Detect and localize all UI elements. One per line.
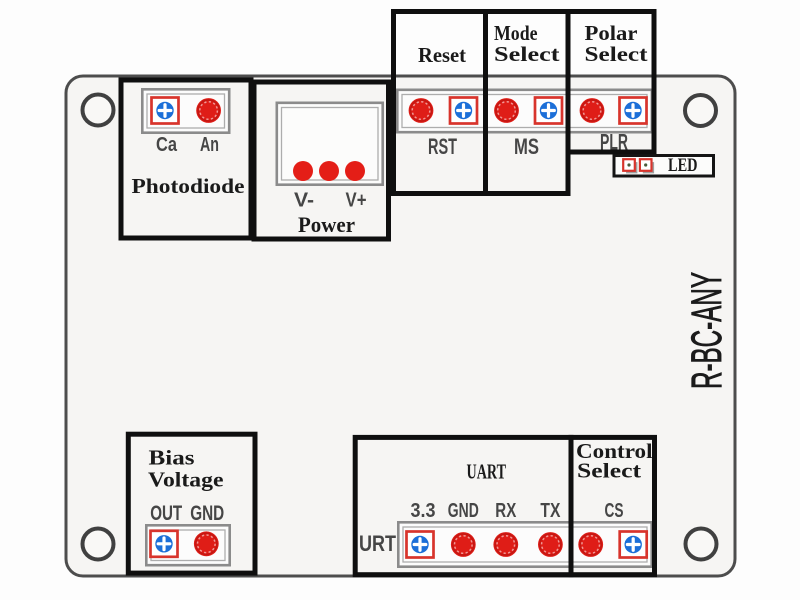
svg-text:PLR: PLR (600, 130, 628, 155)
svg-text:GND: GND (448, 500, 479, 522)
svg-text:Select: Select (494, 42, 560, 66)
svg-text:Photodiode: Photodiode (132, 174, 245, 198)
svg-text:Select: Select (585, 42, 648, 66)
svg-text:An: An (200, 134, 219, 156)
svg-text:Bias: Bias (149, 446, 195, 470)
svg-text:LED: LED (668, 155, 698, 176)
svg-text:3.3: 3.3 (411, 500, 436, 522)
svg-text:Voltage: Voltage (148, 468, 224, 492)
svg-text:RST: RST (428, 134, 457, 159)
svg-text:OUT: OUT (150, 502, 182, 525)
svg-text:Ca: Ca (156, 134, 178, 156)
svg-text:R-BC-ANY: R-BC-ANY (683, 272, 731, 389)
svg-text:Select: Select (577, 459, 641, 483)
svg-text:Power: Power (298, 212, 355, 237)
svg-text:UART: UART (467, 460, 507, 484)
svg-text:Reset: Reset (418, 43, 466, 67)
svg-text:MS: MS (514, 134, 539, 159)
svg-text:V+: V+ (346, 190, 367, 212)
svg-text:V-: V- (294, 190, 314, 212)
svg-text:CS: CS (605, 500, 624, 522)
svg-text:TX: TX (540, 500, 561, 522)
svg-text:URT: URT (359, 531, 396, 556)
svg-text:RX: RX (495, 500, 516, 522)
svg-text:GND: GND (190, 502, 224, 525)
